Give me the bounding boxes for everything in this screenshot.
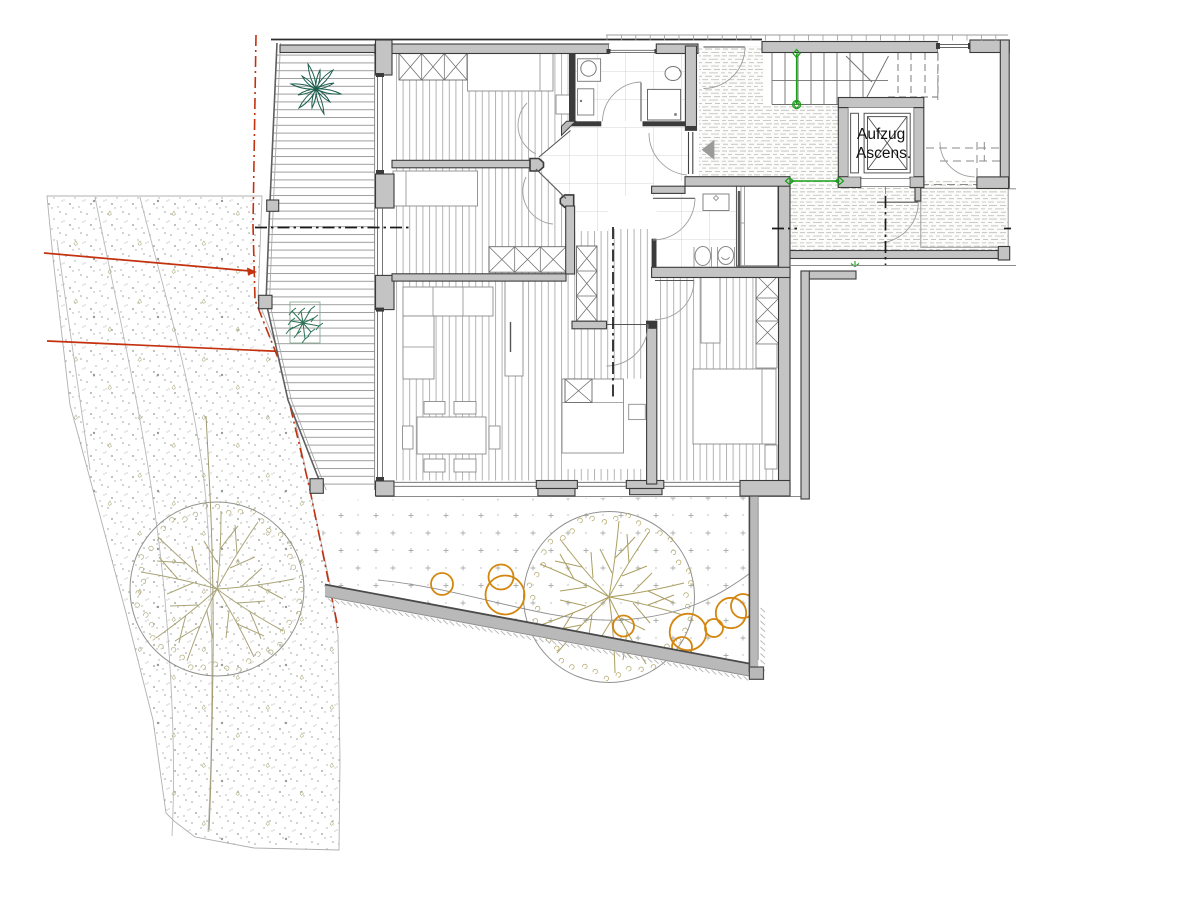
svg-text:Ascens.: Ascens.	[856, 145, 911, 162]
svg-text:Aufzug: Aufzug	[857, 126, 905, 143]
